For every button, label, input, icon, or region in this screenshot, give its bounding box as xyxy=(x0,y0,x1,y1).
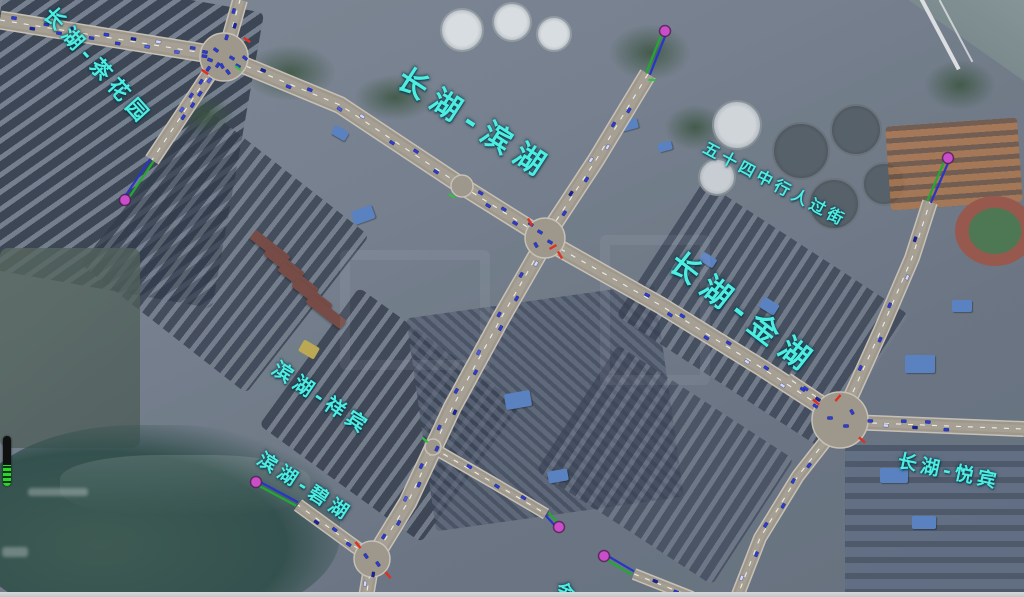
vehicle xyxy=(944,428,949,431)
window-bottom-edge xyxy=(0,592,1024,597)
centroid-connector-green xyxy=(646,30,663,73)
centroid-connector-green xyxy=(127,161,154,201)
signal-mark-green xyxy=(649,79,656,81)
vehicle xyxy=(925,420,930,423)
centroid-node xyxy=(554,522,565,533)
vehicle xyxy=(115,42,121,46)
vehicle xyxy=(174,50,180,54)
vehicle xyxy=(104,33,110,37)
centroid-node xyxy=(599,551,610,562)
vehicle xyxy=(363,581,367,587)
level-indicator-fill xyxy=(3,465,11,486)
road-inner xyxy=(843,202,930,414)
vehicle xyxy=(202,54,208,58)
vehicle xyxy=(827,417,832,420)
vehicle xyxy=(11,16,17,20)
centroid-connector-green xyxy=(927,157,946,201)
centroid-node xyxy=(943,153,954,164)
vehicle xyxy=(131,37,137,41)
map-canvas[interactable]: 长湖-茶花园长湖-滨湖长湖-金湖五十四中行人过街滨湖-祥宾滨湖-碧湖长湖-悦宾金 xyxy=(0,0,1024,597)
centroid-node xyxy=(251,477,262,488)
vehicle xyxy=(190,46,196,50)
vehicle xyxy=(202,50,208,54)
centroid-node xyxy=(660,26,671,37)
simulation-level-indicator[interactable] xyxy=(3,436,11,486)
vehicle xyxy=(843,425,848,428)
centroid-connector-blue xyxy=(931,159,950,203)
vehicle xyxy=(29,27,35,31)
road-inner xyxy=(375,240,546,556)
vehicle xyxy=(371,572,375,578)
simulation-network-layer xyxy=(0,0,1024,597)
vehicle xyxy=(868,419,873,422)
vehicle xyxy=(144,45,150,49)
centroid-connector-blue xyxy=(123,159,150,199)
centroid-connector-blue xyxy=(650,32,667,75)
intersection-B xyxy=(451,175,473,197)
stop-line-red xyxy=(385,571,392,579)
road-D-SW xyxy=(737,430,834,597)
stop-line-red xyxy=(243,37,251,44)
vehicle xyxy=(912,426,917,429)
vehicle xyxy=(156,40,162,44)
vehicle xyxy=(901,420,906,423)
centroid-node xyxy=(120,195,131,206)
vehicle xyxy=(883,424,888,427)
